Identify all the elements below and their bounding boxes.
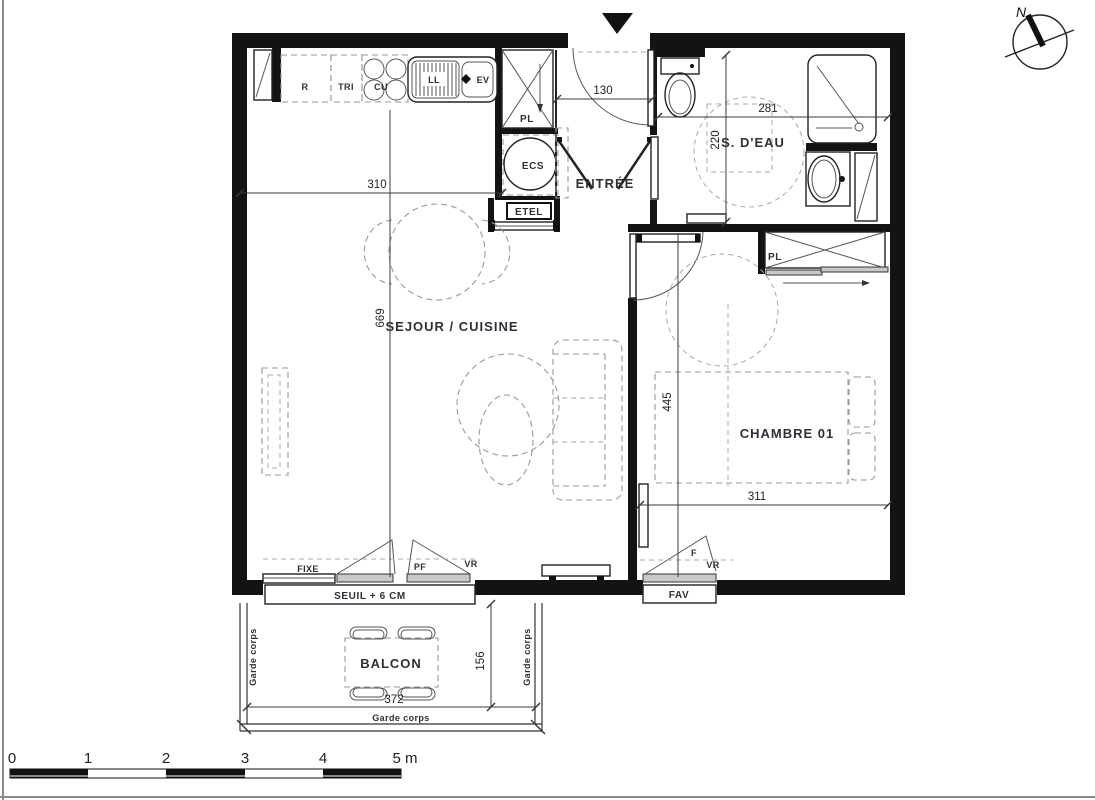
balcony: Garde corps Garde corps Garde corps BALC… xyxy=(237,603,545,734)
dining-table xyxy=(364,204,510,300)
fridge-label: R xyxy=(302,82,309,92)
sofa xyxy=(553,340,622,500)
arrow-right-icon xyxy=(862,280,870,286)
entry-bench xyxy=(687,214,726,223)
svg-text:669: 669 xyxy=(375,308,387,327)
svg-text:281: 281 xyxy=(758,103,777,115)
garde-corps-left-label: Garde corps xyxy=(248,628,258,685)
scale-tick-1: 1 xyxy=(84,750,92,767)
sdeau-label: S. D'EAU xyxy=(721,135,785,150)
etel-panel: ETEL xyxy=(490,203,558,231)
vr-sejour-label: VR xyxy=(464,559,477,569)
garde-corps-right-label: Garde corps xyxy=(522,628,532,685)
hob-outline xyxy=(362,55,408,102)
window-f-chambre: F VR xyxy=(640,536,733,582)
pillow xyxy=(849,433,875,480)
window-fixe: FIXE xyxy=(263,564,335,583)
dimension-445: 445 xyxy=(662,233,678,577)
dimension-311: 311 xyxy=(636,491,892,509)
svg-text:311: 311 xyxy=(748,491,766,503)
chair xyxy=(364,220,392,284)
scale-tick-5: 5 m xyxy=(392,750,417,767)
hob-burner-icon xyxy=(386,59,406,79)
svg-text:156: 156 xyxy=(475,651,487,670)
scale-bar: 0 1 2 3 4 5 m xyxy=(8,750,418,778)
shower xyxy=(808,55,876,143)
north-label: N xyxy=(1016,4,1027,20)
svg-text:130: 130 xyxy=(593,85,612,97)
north-compass: N xyxy=(1005,4,1074,69)
scale-tick-4: 4 xyxy=(319,750,327,767)
dimension-310: 310 xyxy=(236,179,506,197)
sejour-label: SEJOUR / CUISINE xyxy=(385,319,518,334)
hob-burner-icon xyxy=(386,80,406,100)
svg-text:372: 372 xyxy=(384,694,403,706)
fixe-label: FIXE xyxy=(297,564,319,574)
entree-label: ENTRÉE xyxy=(576,176,635,191)
sliding-door-panel xyxy=(821,267,888,272)
pl-entree-label: PL xyxy=(520,114,534,125)
f-label: F xyxy=(691,548,697,558)
accessibility-circle xyxy=(694,97,804,207)
hob-burner-icon xyxy=(364,59,384,79)
scale-tick-3: 3 xyxy=(241,750,249,767)
bedroom-radiator-top xyxy=(637,234,700,242)
scale-tick-0: 0 xyxy=(8,750,16,767)
bedroom-radiator-side xyxy=(639,484,648,547)
sink-label: EV xyxy=(477,75,490,85)
pouf xyxy=(479,395,533,485)
pf-label: PF xyxy=(414,562,426,572)
fav-label: FAV xyxy=(669,590,690,601)
washer-label: LL xyxy=(428,75,440,85)
armchair xyxy=(457,354,559,456)
closet-pl-chambre: PL xyxy=(765,232,888,286)
scale-tick-2: 2 xyxy=(162,750,170,767)
vr-chambre-label: VR xyxy=(706,560,719,570)
chambre-label: CHAMBRE 01 xyxy=(740,426,835,441)
entry-door xyxy=(573,48,654,126)
pillow xyxy=(849,377,875,427)
fridge-outline xyxy=(281,55,331,102)
etel-label: ETEL xyxy=(515,207,543,218)
dimension-372: 372 xyxy=(243,694,540,711)
dimension-156: 156 xyxy=(475,600,495,711)
svg-text:220: 220 xyxy=(710,130,722,149)
svg-text:310: 310 xyxy=(367,179,386,191)
sideboard xyxy=(262,368,288,475)
water-heater-ecs: ECS xyxy=(503,135,558,195)
seuil-sill: SEUIL + 6 CM xyxy=(265,585,475,604)
garde-corps-bottom-label: Garde corps xyxy=(372,713,429,723)
dimension-130: 130 xyxy=(553,85,656,103)
fav-sill: FAV xyxy=(643,585,716,603)
bathroom-door xyxy=(651,137,658,199)
svg-text:445: 445 xyxy=(662,392,674,411)
hob-label: CU xyxy=(374,82,388,92)
sink-unit: LL EV xyxy=(408,57,497,102)
seuil-label: SEUIL + 6 CM xyxy=(334,591,406,602)
balcony-table: BALCON xyxy=(345,638,438,687)
toilet xyxy=(661,58,699,117)
floor-plan-drawing: N xyxy=(0,0,1095,800)
kitchen-counter: LL EV R TRI CU xyxy=(281,55,497,102)
sliding-door-panel xyxy=(766,270,822,275)
balcon-label: BALCON xyxy=(360,656,422,671)
pl-chambre-label: PL xyxy=(768,252,782,263)
tri-label: TRI xyxy=(338,82,354,92)
ecs-label: ECS xyxy=(522,161,544,172)
tri-outline xyxy=(331,55,362,102)
entrance-arrow-icon xyxy=(602,13,633,34)
vanity-washbasin xyxy=(806,152,877,221)
sejour-radiator xyxy=(542,565,610,580)
floor-plan-page: N xyxy=(0,0,1095,800)
closet-pl-entree: PL xyxy=(502,50,553,128)
corner-duct-window xyxy=(254,50,272,100)
